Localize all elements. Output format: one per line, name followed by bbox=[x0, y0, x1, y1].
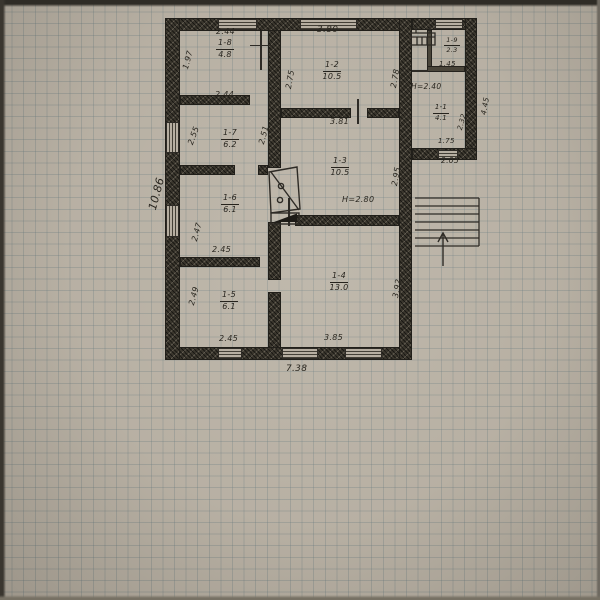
dim-1-8-width: 2.44 bbox=[216, 27, 235, 36]
wall-1-7-1-6-b bbox=[258, 165, 268, 175]
door-line-annex bbox=[412, 70, 428, 72]
vent-icon bbox=[408, 27, 438, 47]
dim-1-9-width: 1.45 bbox=[439, 60, 456, 68]
dim-1-8-depth: 1.97 bbox=[181, 50, 195, 71]
wall-main-left bbox=[165, 18, 180, 360]
dim-1-1-width: 1.75 bbox=[438, 137, 455, 145]
stairs bbox=[411, 194, 483, 276]
room-label-1-7: 1-7 6.2 bbox=[214, 128, 246, 151]
page-edge-top bbox=[0, 0, 600, 7]
room-label-1-9: 1-9 2.3 bbox=[436, 36, 468, 55]
window-bottom-1 bbox=[218, 348, 242, 359]
wall-1-2-1-3-b bbox=[367, 108, 399, 118]
page-edge-left bbox=[0, 0, 6, 600]
dim-house-depth: 10.86 bbox=[146, 176, 167, 211]
dim-1-2-width: 3.80 bbox=[317, 25, 338, 35]
window-annex-top bbox=[435, 19, 463, 29]
window-bottom-3 bbox=[345, 348, 382, 359]
room-label-1-4: 1-4 13.0 bbox=[323, 271, 355, 294]
dim-1-5-depth: 2.49 bbox=[187, 286, 201, 307]
dim-1-4-width: 3.85 bbox=[324, 333, 343, 342]
dim-annex-depth: 4.45 bbox=[479, 96, 491, 115]
room-label-1-6: 1-6 6.1 bbox=[214, 193, 246, 216]
wall-1-3-1-4 bbox=[295, 215, 399, 226]
wall-main-top bbox=[165, 18, 412, 31]
ceiling-height-main: H=2.80 bbox=[342, 195, 374, 204]
dim-1-6-width: 2.45 bbox=[212, 245, 231, 254]
stairs-up-arrow-icon bbox=[438, 233, 448, 266]
dim-1-5-width: 2.45 bbox=[219, 334, 238, 343]
door-tick-1-2-1-3 bbox=[357, 99, 359, 124]
wall-center-upper bbox=[268, 30, 281, 168]
stove-flue-mark bbox=[274, 214, 297, 223]
scanned-floor-plan-page: 2.44 3.80 1.97 2.75 2.78 2.44 2.55 2.51 … bbox=[0, 0, 600, 600]
page-edge-right bbox=[596, 0, 600, 600]
stove-symbol bbox=[268, 165, 304, 227]
partition-line-1-8 bbox=[260, 31, 262, 70]
window-bottom-2 bbox=[282, 348, 318, 359]
dim-1-7-width: 2.44 bbox=[215, 90, 234, 99]
dim-1-2-depth-left: 2.75 bbox=[284, 69, 296, 89]
wall-1-6-1-5 bbox=[180, 257, 260, 267]
room-label-1-5: 1-5 6.1 bbox=[213, 290, 245, 313]
dim-house-width: 7.38 bbox=[286, 364, 307, 374]
dim-annex-width: 2.05 bbox=[441, 156, 459, 165]
dim-1-7-depth-left: 2.55 bbox=[186, 125, 201, 146]
dim-1-3-width: 3.81 bbox=[330, 117, 349, 126]
wall-center-mid bbox=[268, 222, 281, 280]
window-left-1 bbox=[166, 122, 179, 153]
room-label-1-1: 1-1 4.1 bbox=[425, 103, 457, 123]
wall-center-lower bbox=[268, 292, 281, 348]
survey-cross bbox=[250, 45, 271, 46]
room-label-1-2: 1-2 10.5 bbox=[316, 60, 348, 83]
page-edge-bottom bbox=[0, 595, 600, 600]
room-label-1-3: 1-3 10.5 bbox=[324, 156, 356, 179]
window-left-2 bbox=[166, 205, 179, 237]
ceiling-height-annex: H=2.40 bbox=[411, 82, 441, 91]
dim-1-6-depth: 2.47 bbox=[190, 222, 204, 243]
room-label-1-8: 1-8 4.8 bbox=[209, 38, 241, 61]
wall-1-7-1-6-a bbox=[180, 165, 235, 175]
